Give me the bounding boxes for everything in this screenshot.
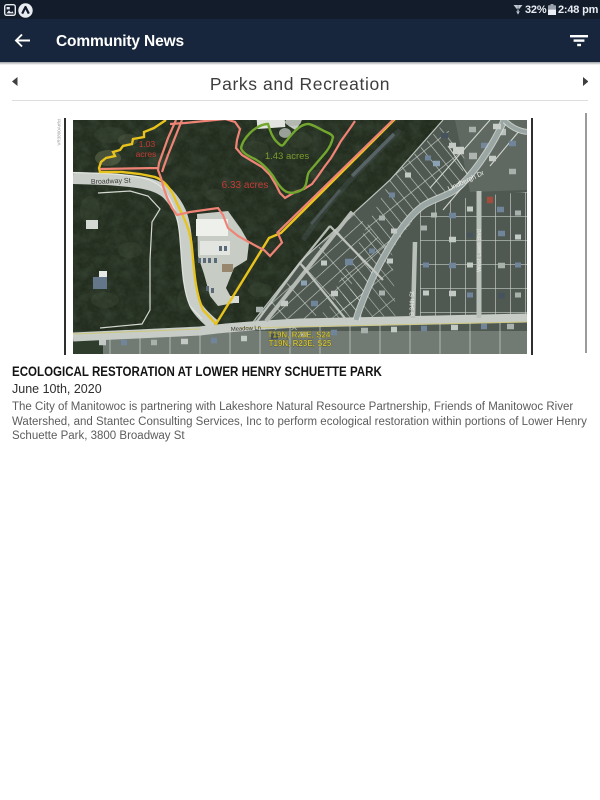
svg-text:6.33 acres: 6.33 acres xyxy=(222,180,269,191)
svg-text:West Lawn Blvd: West Lawn Blvd xyxy=(477,229,483,272)
svg-text:Broadway St: Broadway St xyxy=(91,178,131,186)
svg-text:1.03: 1.03 xyxy=(139,139,156,149)
svg-text:1.43 acres: 1.43 acres xyxy=(265,151,310,162)
svg-text:T19N, R23E, S25: T19N, R23E, S25 xyxy=(269,339,332,348)
svg-text:acres: acres xyxy=(136,149,157,159)
svg-text:B 34th St: B 34th St xyxy=(410,291,416,316)
